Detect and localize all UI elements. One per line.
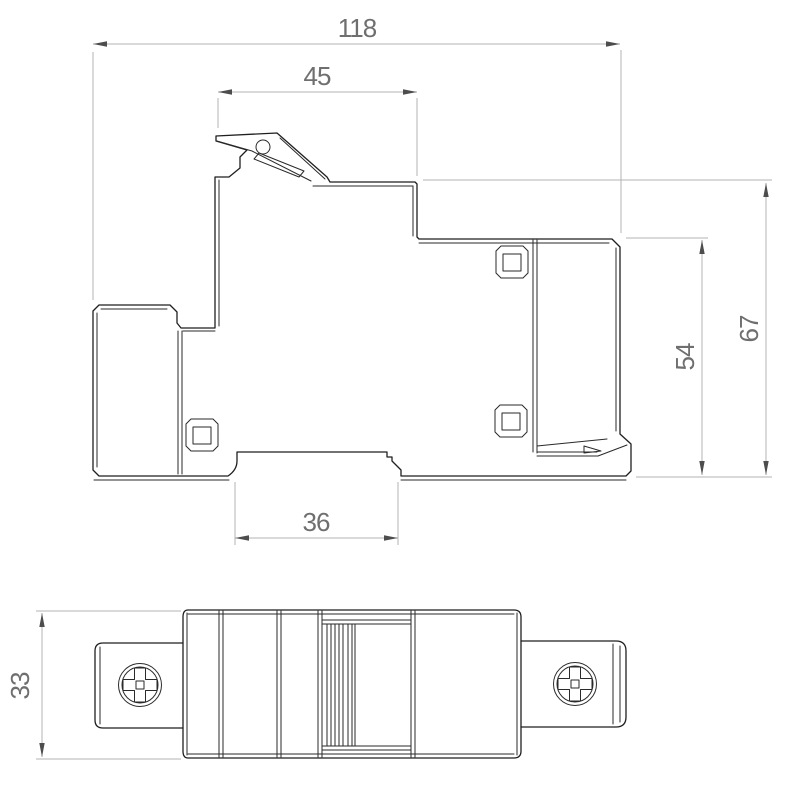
dim-arrow (39, 743, 44, 757)
boss-square-hole (193, 427, 211, 444)
boss-octagon (495, 405, 527, 437)
phillips-screw-right (554, 663, 597, 706)
dim-label-118: 118 (338, 13, 377, 43)
dimension-overall-height: 67 (423, 180, 772, 477)
flange-right (521, 641, 626, 727)
side-view (93, 133, 631, 480)
boss-octagon (186, 419, 218, 451)
din-claw-foot (533, 240, 627, 456)
dim-label-36: 36 (303, 507, 330, 537)
flange-outline (95, 643, 183, 728)
foot-chamfer (598, 445, 627, 456)
dim-arrow (93, 41, 107, 46)
din-latch (217, 138, 325, 181)
screw-head-inner (557, 666, 593, 702)
phillips-center (571, 680, 579, 688)
dim-arrow (763, 461, 768, 475)
dim-arrow (699, 461, 704, 475)
dim-arrow (606, 41, 620, 46)
boss-square-hole (502, 413, 520, 430)
dim-arrow (39, 613, 44, 627)
boss-square-hole (503, 254, 521, 271)
spring-block (322, 620, 411, 750)
boss-lower-right (495, 405, 527, 437)
dimension-overall-width: 118 (93, 13, 621, 300)
phillips-center (136, 681, 144, 689)
drawing-canvas: 118 45 67 54 36 (0, 0, 800, 790)
dimension-body-height: 54 (626, 238, 708, 475)
dim-label-54: 54 (670, 343, 700, 370)
latch-pivot-hole (256, 140, 270, 154)
bottom-view (95, 610, 626, 758)
dim-arrow (235, 535, 249, 540)
boss-lower-left (186, 419, 218, 451)
side-view-outline (93, 133, 631, 476)
screw-head-inner (122, 667, 158, 703)
technical-drawing-svg: 118 45 67 54 36 (0, 0, 800, 790)
dim-label-33: 33 (5, 672, 35, 699)
dimension-slot-width: 36 (235, 482, 398, 545)
dim-arrow (218, 89, 232, 94)
boss-octagon (496, 246, 528, 278)
phillips-cross (558, 667, 592, 701)
phillips-cross (123, 668, 157, 702)
flange-outline (521, 641, 626, 727)
dim-arrow (699, 240, 704, 254)
spring-leaf-line (537, 439, 607, 446)
dimension-upper-width: 45 (218, 61, 417, 176)
phillips-screw-left (119, 664, 162, 707)
screw-head-outer (554, 663, 597, 706)
dim-label-67: 67 (734, 315, 764, 342)
dim-label-45: 45 (304, 61, 331, 91)
boss-upper-right (496, 246, 528, 278)
dimension-depth: 33 (5, 611, 181, 759)
dim-arrow (384, 535, 398, 540)
dim-arrow (403, 89, 417, 94)
flange-left (95, 643, 183, 728)
screw-head-outer (119, 664, 162, 707)
dim-arrow (763, 183, 768, 197)
side-view-inner-edges (94, 180, 626, 480)
